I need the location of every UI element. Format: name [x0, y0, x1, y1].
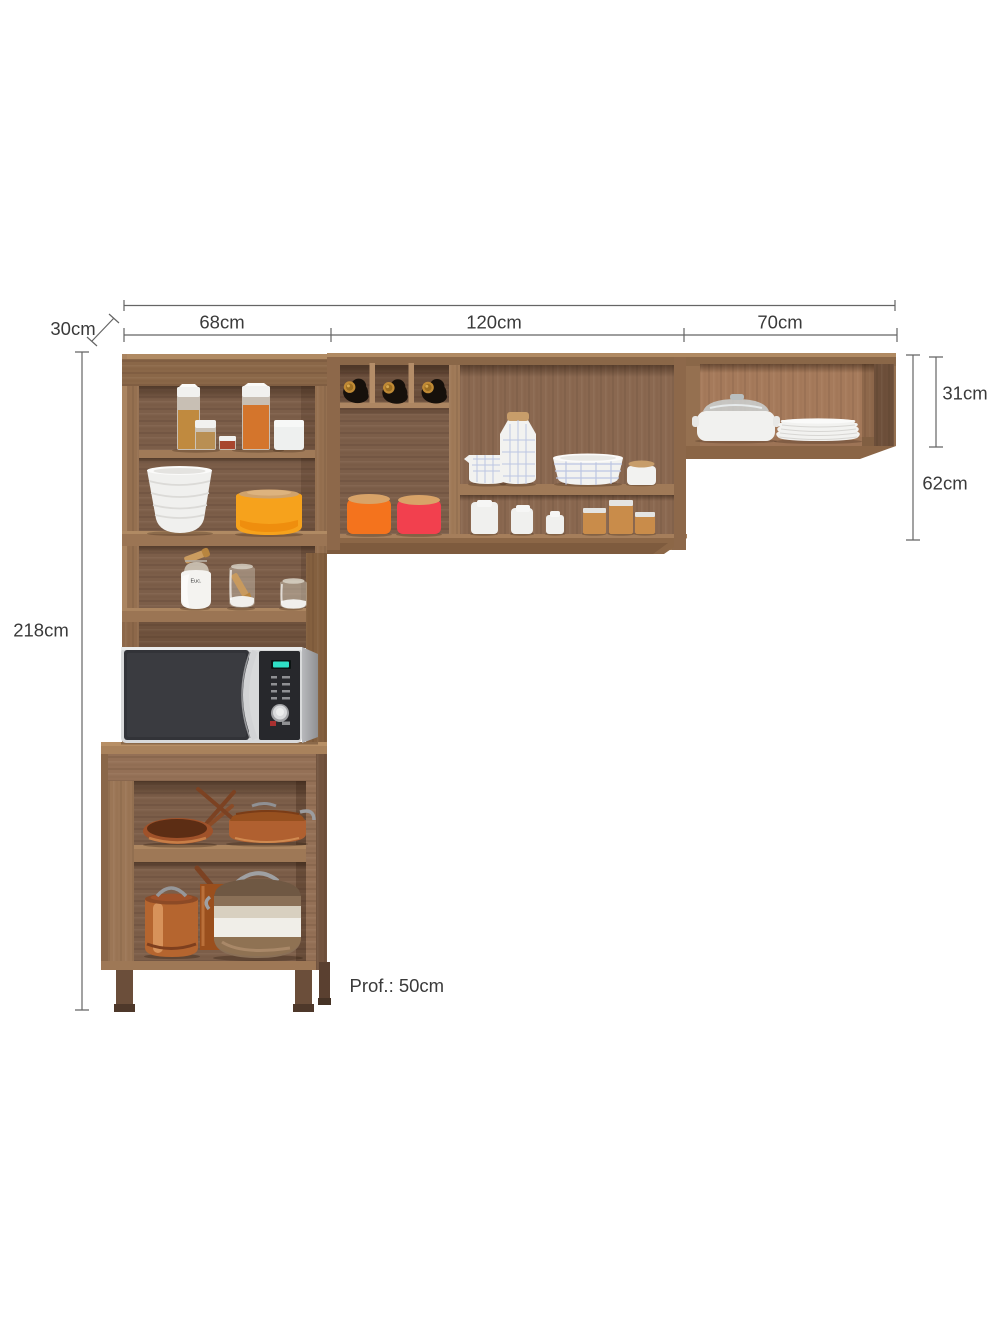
svg-text:30cm: 30cm: [50, 318, 95, 339]
svg-text:70cm: 70cm: [757, 312, 802, 333]
svg-text:62cm: 62cm: [922, 473, 967, 494]
svg-text:Euc.: Euc.: [190, 579, 201, 585]
svg-text:218cm: 218cm: [13, 620, 69, 641]
svg-text:120cm: 120cm: [466, 312, 522, 333]
svg-text:68cm: 68cm: [199, 312, 244, 333]
svg-text:31cm: 31cm: [942, 383, 987, 404]
svg-text:Prof.: 50cm: Prof.: 50cm: [350, 975, 445, 996]
